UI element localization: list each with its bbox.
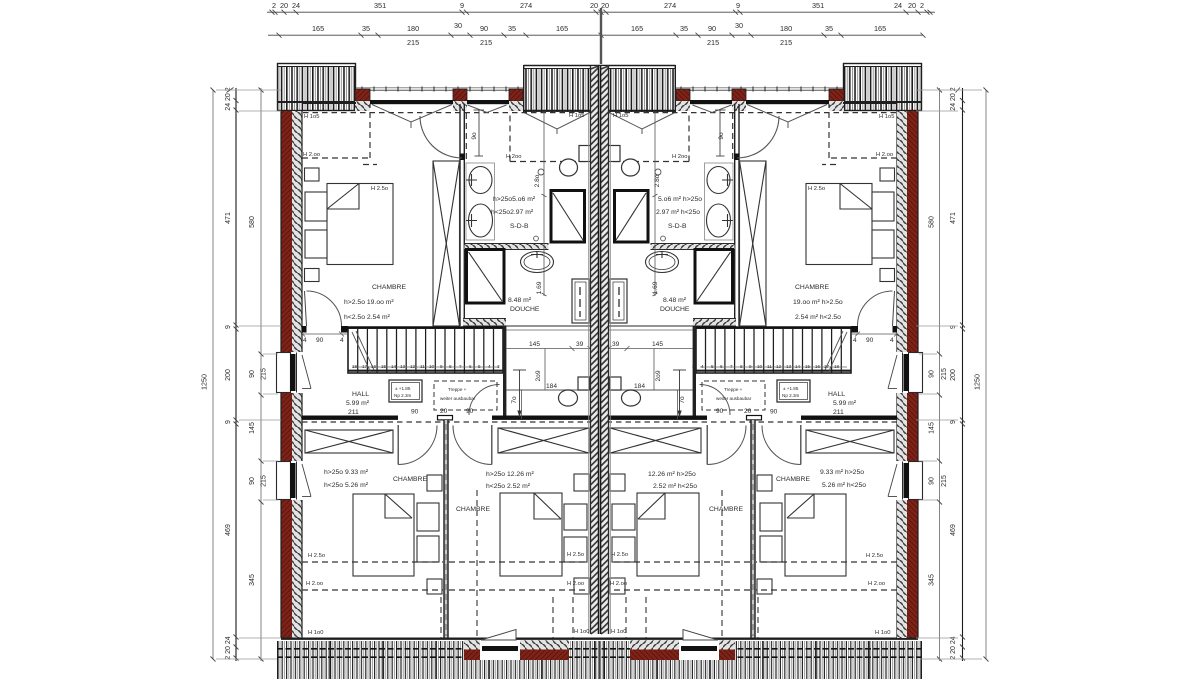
svg-text:90: 90 — [480, 24, 488, 33]
svg-text:7: 7 — [730, 364, 733, 369]
svg-text:90: 90 — [716, 408, 724, 415]
svg-text:20: 20 — [908, 1, 916, 10]
svg-text:DOUCHE: DOUCHE — [510, 306, 540, 313]
svg-text:20: 20 — [590, 1, 598, 10]
svg-text:H 2.5o: H 2.5o — [866, 553, 883, 559]
svg-text:3: 3 — [692, 364, 695, 369]
svg-text:S-D-B: S-D-B — [668, 223, 687, 230]
svg-text:2.8o: 2.8o — [534, 174, 541, 187]
svg-text:H 2.oo: H 2.oo — [303, 152, 320, 158]
svg-text:145: 145 — [249, 422, 256, 434]
svg-text:471: 471 — [225, 212, 232, 224]
svg-text:10: 10 — [757, 364, 763, 369]
svg-text:145: 145 — [529, 341, 540, 348]
svg-text:165: 165 — [631, 24, 643, 33]
svg-text:200: 200 — [225, 369, 232, 381]
svg-text:18: 18 — [352, 364, 358, 369]
svg-text:h<2.5o 2.54 m²: h<2.5o 2.54 m² — [344, 314, 391, 321]
svg-text:90: 90 — [316, 337, 324, 344]
svg-text:35: 35 — [680, 24, 688, 33]
svg-text:h<25o2.97 m²: h<25o2.97 m² — [491, 209, 534, 216]
svg-text:5: 5 — [711, 364, 714, 369]
svg-text:19.oo m² h>2.5o: 19.oo m² h>2.5o — [793, 299, 843, 306]
svg-text:30: 30 — [454, 21, 462, 30]
svg-text:9o: 9o — [718, 132, 725, 140]
svg-text:20: 20 — [280, 1, 288, 10]
svg-text:H 2.5o: H 2.5o — [308, 553, 325, 559]
svg-text:8: 8 — [740, 364, 743, 369]
svg-text:24: 24 — [894, 1, 902, 10]
svg-text:39: 39 — [576, 341, 584, 348]
svg-text:215: 215 — [707, 38, 719, 47]
svg-text:2: 2 — [920, 1, 924, 10]
svg-text:h>25o 12.26 m²: h>25o 12.26 m² — [486, 471, 535, 478]
svg-text:5.99 m²: 5.99 m² — [346, 400, 370, 407]
svg-text:H 1o0: H 1o0 — [611, 629, 626, 635]
svg-text:16: 16 — [371, 364, 377, 369]
svg-text:Treppe +: Treppe + — [448, 387, 467, 392]
svg-text:8.48 m²: 8.48 m² — [508, 297, 532, 304]
svg-text:5.26 m² h<25o: 5.26 m² h<25o — [822, 482, 866, 489]
svg-text:H 1o0: H 1o0 — [308, 630, 323, 636]
svg-text:274: 274 — [664, 1, 676, 10]
svg-text:90: 90 — [866, 337, 874, 344]
svg-text:90: 90 — [929, 370, 936, 378]
svg-text:13: 13 — [400, 364, 406, 369]
svg-text:CHAMBRE: CHAMBRE — [709, 506, 743, 513]
svg-text:4: 4 — [303, 337, 307, 344]
svg-text:215: 215 — [480, 38, 492, 47]
svg-text:90: 90 — [708, 24, 716, 33]
svg-text:H 2.oo: H 2.oo — [306, 581, 323, 587]
svg-text:H 2.oo: H 2.oo — [567, 581, 584, 587]
svg-text:2.54 m² h<2.5o: 2.54 m² h<2.5o — [795, 314, 841, 321]
svg-text:CHAMBRE: CHAMBRE — [456, 506, 490, 513]
svg-text:HALL: HALL — [352, 391, 369, 398]
svg-text:S-D-B: S-D-B — [510, 223, 529, 230]
svg-text:11: 11 — [767, 364, 772, 369]
svg-text:1.69: 1.69 — [536, 281, 543, 294]
svg-text:2o9: 2o9 — [655, 370, 662, 381]
svg-text:h<25o 5.26 m²: h<25o 5.26 m² — [324, 482, 369, 489]
svg-text:1250: 1250 — [973, 374, 982, 390]
svg-text:16: 16 — [815, 364, 821, 369]
svg-text:17: 17 — [362, 364, 368, 369]
svg-text:8: 8 — [449, 364, 452, 369]
svg-text:9: 9 — [460, 1, 464, 10]
svg-text:469: 469 — [950, 524, 957, 536]
svg-text:9o: 9o — [471, 132, 478, 140]
svg-text:8.48 m²: 8.48 m² — [663, 297, 687, 304]
svg-text:weiter ausbaubar: weiter ausbaubar — [440, 396, 476, 401]
svg-text:580: 580 — [249, 216, 256, 228]
svg-text:4: 4 — [890, 337, 894, 344]
svg-text:20: 20 — [744, 408, 752, 415]
svg-text:20: 20 — [440, 408, 448, 415]
svg-text:6: 6 — [720, 364, 723, 369]
svg-text:14: 14 — [391, 364, 397, 369]
svg-text:7o: 7o — [679, 396, 686, 404]
svg-text:H 1o5: H 1o5 — [613, 113, 628, 119]
svg-text:H 2oo: H 2oo — [506, 154, 521, 160]
svg-text:weiter ausbaubar: weiter ausbaubar — [716, 396, 752, 401]
svg-text:90: 90 — [249, 477, 256, 485]
svg-text:± +1.85: ± +1.85 — [395, 386, 411, 391]
svg-text:H 2.oo: H 2.oo — [610, 581, 627, 587]
svg-text:HALL: HALL — [828, 391, 845, 398]
svg-text:6: 6 — [469, 364, 472, 369]
svg-text:H 2.5o: H 2.5o — [371, 186, 388, 192]
svg-text:215: 215 — [780, 38, 792, 47]
svg-text:184: 184 — [546, 383, 557, 390]
svg-text:24 20 2: 24 20 2 — [225, 87, 232, 110]
svg-text:H 2.oo: H 2.oo — [876, 152, 893, 158]
svg-text:H 1o0: H 1o0 — [875, 630, 890, 636]
svg-text:12: 12 — [410, 364, 416, 369]
svg-text:± +1.85: ± +1.85 — [783, 386, 799, 391]
svg-text:90: 90 — [466, 408, 474, 415]
svg-text:200: 200 — [950, 369, 957, 381]
svg-text:H 1o5: H 1o5 — [879, 114, 894, 120]
svg-text:35: 35 — [362, 24, 370, 33]
svg-text:h>2.5o 19.oo m²: h>2.5o 19.oo m² — [344, 299, 394, 306]
svg-text:4: 4 — [488, 364, 491, 369]
svg-text:9: 9 — [749, 364, 752, 369]
svg-text:30: 30 — [735, 21, 743, 30]
svg-text:180: 180 — [780, 24, 792, 33]
svg-text:4: 4 — [340, 337, 344, 344]
svg-text:CHAMBRE: CHAMBRE — [795, 284, 829, 291]
svg-text:165: 165 — [556, 24, 568, 33]
svg-text:12: 12 — [776, 364, 782, 369]
svg-text:H 1o0: H 1o0 — [574, 629, 589, 635]
svg-text:3: 3 — [497, 364, 500, 369]
svg-text:DOUCHE: DOUCHE — [660, 306, 690, 313]
svg-text:H 2.5o: H 2.5o — [611, 552, 628, 558]
svg-text:2 20 24: 2 20 24 — [950, 636, 957, 659]
svg-text:9: 9 — [950, 325, 957, 329]
svg-text:9: 9 — [736, 1, 740, 10]
svg-text:35: 35 — [825, 24, 833, 33]
svg-text:1250: 1250 — [200, 374, 209, 390]
svg-text:7o: 7o — [511, 396, 518, 404]
svg-text:90: 90 — [929, 477, 936, 485]
svg-text:215: 215 — [261, 475, 268, 487]
svg-text:5.99 m²: 5.99 m² — [833, 400, 857, 407]
svg-text:H 2oo: H 2oo — [672, 154, 687, 160]
svg-text:90: 90 — [249, 370, 256, 378]
svg-text:2.97 m² h<25o: 2.97 m² h<25o — [656, 209, 700, 216]
svg-text:24 20 2: 24 20 2 — [950, 87, 957, 110]
svg-text:5: 5 — [478, 364, 481, 369]
svg-text:11: 11 — [420, 364, 425, 369]
svg-text:215: 215 — [261, 368, 268, 380]
svg-text:5.o6 m² h>25o: 5.o6 m² h>25o — [658, 196, 702, 203]
svg-text:14: 14 — [795, 364, 801, 369]
svg-text:184: 184 — [634, 383, 645, 390]
svg-text:145: 145 — [929, 422, 936, 434]
svg-text:2o9: 2o9 — [535, 370, 542, 381]
svg-text:17: 17 — [824, 364, 830, 369]
svg-text:12.26 m² h>25o: 12.26 m² h>25o — [648, 471, 696, 478]
svg-text:215: 215 — [941, 368, 948, 380]
svg-text:20: 20 — [601, 1, 609, 10]
svg-text:580: 580 — [929, 216, 936, 228]
svg-text:351: 351 — [812, 1, 824, 10]
svg-text:13: 13 — [786, 364, 792, 369]
svg-text:469: 469 — [225, 524, 232, 536]
svg-text:90: 90 — [770, 409, 778, 416]
svg-text:211: 211 — [833, 409, 844, 416]
svg-text:471: 471 — [950, 212, 957, 224]
svg-text:H 1o5: H 1o5 — [569, 113, 584, 119]
svg-text:2 20 24: 2 20 24 — [225, 636, 232, 659]
svg-text:CHAMBRE: CHAMBRE — [372, 284, 406, 291]
svg-text:15: 15 — [805, 364, 811, 369]
svg-text:10: 10 — [429, 364, 435, 369]
svg-text:145: 145 — [652, 341, 663, 348]
svg-text:9: 9 — [225, 325, 232, 329]
svg-text:CHAMBRE: CHAMBRE — [776, 476, 810, 483]
svg-text:H 2.5o: H 2.5o — [808, 186, 825, 192]
svg-text:Treppe +: Treppe + — [724, 387, 743, 392]
svg-text:9: 9 — [225, 420, 232, 424]
svg-text:CHAMBRE: CHAMBRE — [393, 476, 427, 483]
svg-text:90: 90 — [411, 409, 419, 416]
svg-text:9: 9 — [950, 420, 957, 424]
svg-text:7: 7 — [459, 364, 462, 369]
svg-text:2.8o: 2.8o — [654, 174, 661, 187]
svg-text:35: 35 — [508, 24, 516, 33]
svg-text:H 2.oo: H 2.oo — [868, 581, 885, 587]
svg-text:180: 180 — [407, 24, 419, 33]
svg-text:215: 215 — [407, 38, 419, 47]
svg-text:9: 9 — [440, 364, 443, 369]
svg-text:2: 2 — [272, 1, 276, 10]
svg-text:H 1o5: H 1o5 — [304, 114, 319, 120]
svg-text:h>25o 9.33 m²: h>25o 9.33 m² — [324, 469, 369, 476]
svg-text:9.33 m² h>25o: 9.33 m² h>25o — [820, 469, 864, 476]
svg-text:H 2.5o: H 2.5o — [567, 552, 584, 558]
svg-text:165: 165 — [874, 24, 886, 33]
svg-text:Np 2.3m: Np 2.3m — [394, 393, 412, 398]
svg-text:211: 211 — [348, 409, 359, 416]
svg-text:345: 345 — [249, 574, 256, 586]
svg-text:4: 4 — [853, 337, 857, 344]
svg-text:18: 18 — [834, 364, 840, 369]
svg-text:24: 24 — [292, 1, 300, 10]
svg-text:39: 39 — [612, 341, 620, 348]
svg-text:345: 345 — [929, 574, 936, 586]
svg-text:215: 215 — [941, 475, 948, 487]
svg-text:15: 15 — [381, 364, 387, 369]
svg-text:h<25o 2.52 m²: h<25o 2.52 m² — [486, 483, 531, 490]
svg-text:1.69: 1.69 — [652, 281, 659, 294]
svg-text:2.52 m² h<25o: 2.52 m² h<25o — [653, 483, 697, 490]
svg-text:h>25o5.o6 m²: h>25o5.o6 m² — [493, 196, 536, 203]
svg-text:165: 165 — [312, 24, 324, 33]
svg-text:4: 4 — [701, 364, 704, 369]
svg-text:Np 2.3m: Np 2.3m — [782, 393, 800, 398]
svg-text:351: 351 — [374, 1, 386, 10]
svg-text:274: 274 — [520, 1, 532, 10]
